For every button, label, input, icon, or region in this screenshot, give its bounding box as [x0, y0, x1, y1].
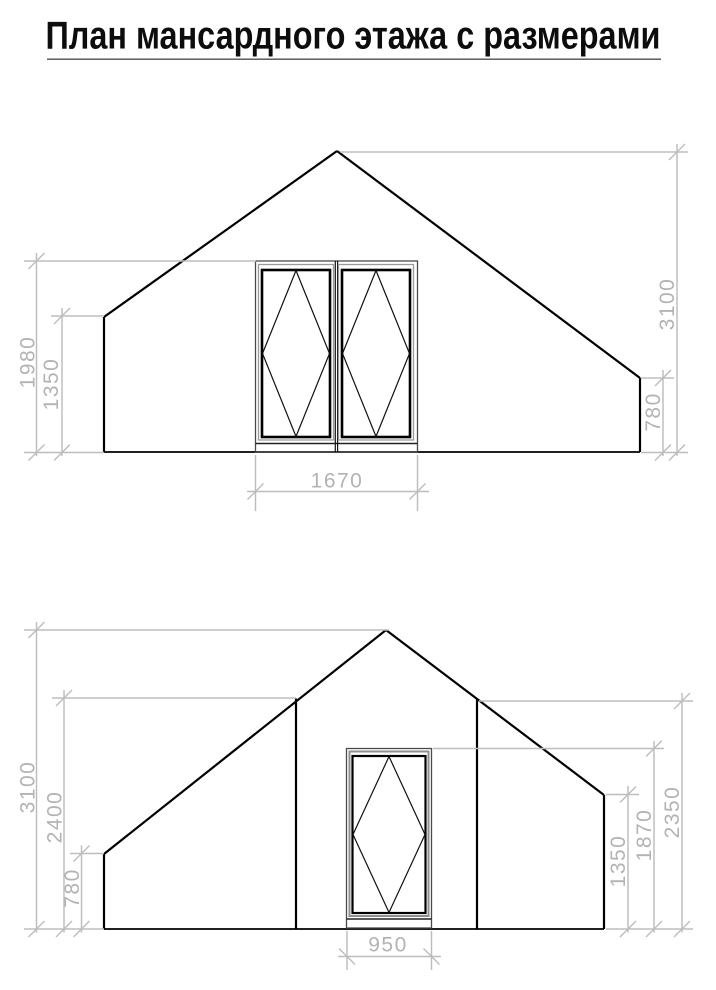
- svg-text:1350: 1350: [40, 358, 63, 411]
- svg-text:3100: 3100: [656, 278, 679, 331]
- svg-text:3100: 3100: [17, 761, 40, 814]
- svg-text:1870: 1870: [633, 809, 656, 862]
- svg-text:1350: 1350: [607, 835, 630, 888]
- svg-text:1670: 1670: [311, 470, 364, 493]
- svg-text:780: 780: [642, 392, 665, 432]
- svg-text:1980: 1980: [17, 336, 40, 389]
- svg-text:План мансардного этажа с разме: План мансардного этажа с размерами: [46, 15, 661, 58]
- svg-text:950: 950: [368, 934, 408, 957]
- svg-text:2400: 2400: [44, 791, 67, 844]
- svg-text:2350: 2350: [661, 786, 684, 839]
- svg-text:780: 780: [61, 868, 84, 908]
